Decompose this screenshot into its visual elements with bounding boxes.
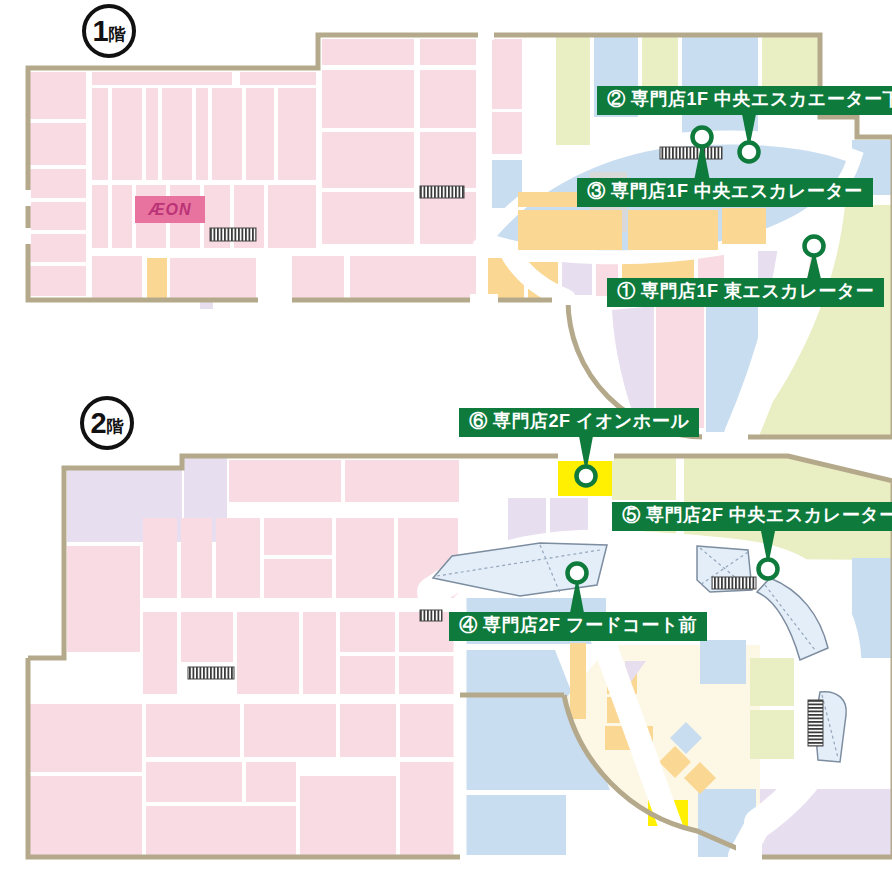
marker-label-5: ⑤ 専門店2F 中央エスカレーター bbox=[612, 502, 892, 531]
mall-floor-maps: ÆON bbox=[0, 0, 892, 888]
floor2-badge: 2階 bbox=[80, 396, 134, 450]
escalator-icon bbox=[808, 700, 823, 746]
escalator-icon bbox=[188, 667, 234, 679]
aeon-logo: ÆON bbox=[135, 196, 205, 223]
floor1-badge-suffix: 階 bbox=[109, 26, 126, 43]
marker-label-2: ② 専門店1F 中央エスカエーター下 bbox=[597, 86, 892, 115]
escalator-icon bbox=[712, 577, 756, 589]
location-pin-6 bbox=[577, 467, 596, 486]
floor2-map bbox=[28, 436, 892, 860]
escalator-icon bbox=[420, 610, 442, 621]
map-canvas: ÆON bbox=[0, 0, 892, 888]
location-pin-5 bbox=[759, 560, 778, 579]
floor1-yellow-block bbox=[147, 258, 167, 298]
floor2-badge-suffix: 階 bbox=[107, 418, 124, 435]
marker-label-4: ④ 専門店2F フードコート前 bbox=[449, 612, 707, 641]
floor1-badge: 1階 bbox=[82, 4, 136, 58]
floor1-aeon-store-blocks bbox=[30, 39, 476, 309]
escalator-icon bbox=[420, 186, 464, 198]
location-pin-4 bbox=[568, 564, 587, 583]
location-pin-1 bbox=[805, 237, 824, 256]
marker-label-6: ⑥ 専門店2F イオンホール bbox=[459, 408, 699, 437]
aeon-logo-text: ÆON bbox=[148, 201, 192, 218]
marker-label-1: ① 専門店1F 東エスカレーター bbox=[607, 278, 884, 307]
location-pin-2 bbox=[740, 143, 759, 162]
floor1-badge-number: 1 bbox=[92, 17, 108, 46]
location-pin-3 bbox=[693, 128, 712, 147]
floor2-badge-number: 2 bbox=[90, 409, 106, 438]
escalator-icon bbox=[660, 147, 722, 159]
escalator-icon bbox=[210, 228, 256, 241]
marker-label-3: ③ 専門店1F 中央エスカレーター bbox=[577, 178, 873, 207]
